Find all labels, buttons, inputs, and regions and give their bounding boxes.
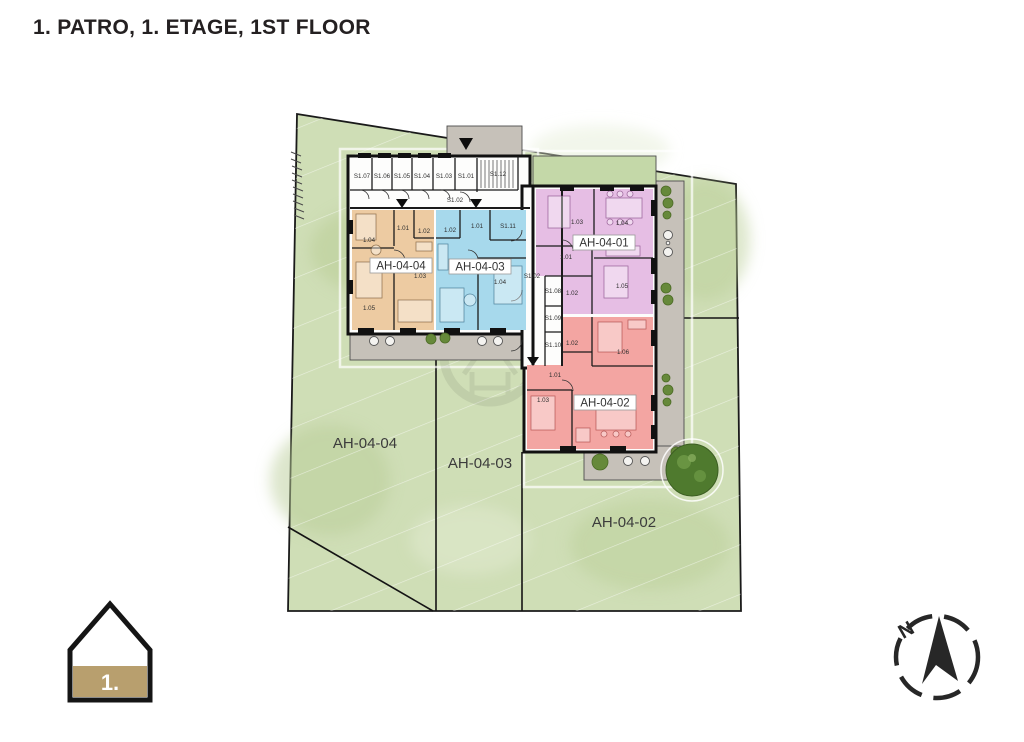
room-label: S1.08 xyxy=(545,288,562,295)
badge-ah0403: AH-04-03 xyxy=(449,259,511,274)
apartment-code-label: AH-04-03 xyxy=(455,262,504,274)
badge-ah0404: AH-04-04 xyxy=(370,258,432,273)
badge-ah0402: AH-04-02 xyxy=(574,395,636,410)
badge-ah0401: AH-04-01 xyxy=(573,235,635,250)
plot-label-ah0404: AH-04-04 xyxy=(333,435,397,452)
tree-icon xyxy=(661,439,723,501)
compass-icon: N xyxy=(895,616,978,698)
room-label: 1.04 xyxy=(363,237,376,244)
room-label: 1.02 xyxy=(444,227,457,234)
site-plan: AH-04-01 AH-04-04 AH-04-03 AH-04-02 xyxy=(0,0,1024,742)
room-label: 1.01 xyxy=(397,225,410,232)
room-label: 1.06 xyxy=(617,349,630,356)
plot-label-ah0403: AH-04-03 xyxy=(448,455,512,472)
room-label: 1.04 xyxy=(494,279,507,286)
east-terrace xyxy=(656,181,684,458)
room-label: S1.07 xyxy=(354,173,371,180)
room-label: 1.02 xyxy=(566,290,579,297)
page-title: 1. PATRO, 1. ETAGE, 1ST FLOOR xyxy=(33,16,371,40)
room-label: 1.05 xyxy=(363,305,376,312)
room-label: S1.01 xyxy=(458,173,475,180)
room-label: S1.10 xyxy=(545,342,562,349)
room-label: 1.01 xyxy=(471,223,484,230)
plot-label-ah0402: AH-04-02 xyxy=(592,514,656,531)
private-garden-strip xyxy=(533,156,656,188)
room-label: 1.02 xyxy=(566,340,579,347)
room-label: 1.01 xyxy=(560,254,573,261)
room-label: S1.11 xyxy=(500,223,516,230)
room-label: 1.02 xyxy=(418,228,431,235)
room-label: S1.06 xyxy=(374,173,391,180)
room-label: 1.03 xyxy=(571,219,584,226)
room-label: S1.02 xyxy=(524,273,541,280)
room-label: S1.04 xyxy=(414,173,431,180)
room-label: 1.04 xyxy=(616,220,629,227)
room-label: 1.05 xyxy=(616,283,629,290)
room-label: S1.05 xyxy=(394,173,411,180)
room-label: 1.03 xyxy=(414,273,427,280)
north-arrow-icon xyxy=(922,616,958,684)
floor-legend-house-icon: 1. xyxy=(70,604,150,700)
floorplan-page: 1. PATRO, 1. ETAGE, 1ST FLOOR xyxy=(0,0,1024,742)
room-label: S1.09 xyxy=(545,315,562,322)
apartment-code-label: AH-04-02 xyxy=(580,398,629,410)
floor-legend-number: 1. xyxy=(101,670,119,695)
room-label: S1.03 xyxy=(436,173,453,180)
apartment-code-label: AH-04-01 xyxy=(579,238,628,250)
room-label: S1.02 xyxy=(447,197,464,204)
apartment-code-label: AH-04-04 xyxy=(376,261,426,273)
room-label: 1.01 xyxy=(549,372,562,379)
room-label: 1.03 xyxy=(537,397,550,404)
room-label: S1.12 xyxy=(490,171,507,178)
